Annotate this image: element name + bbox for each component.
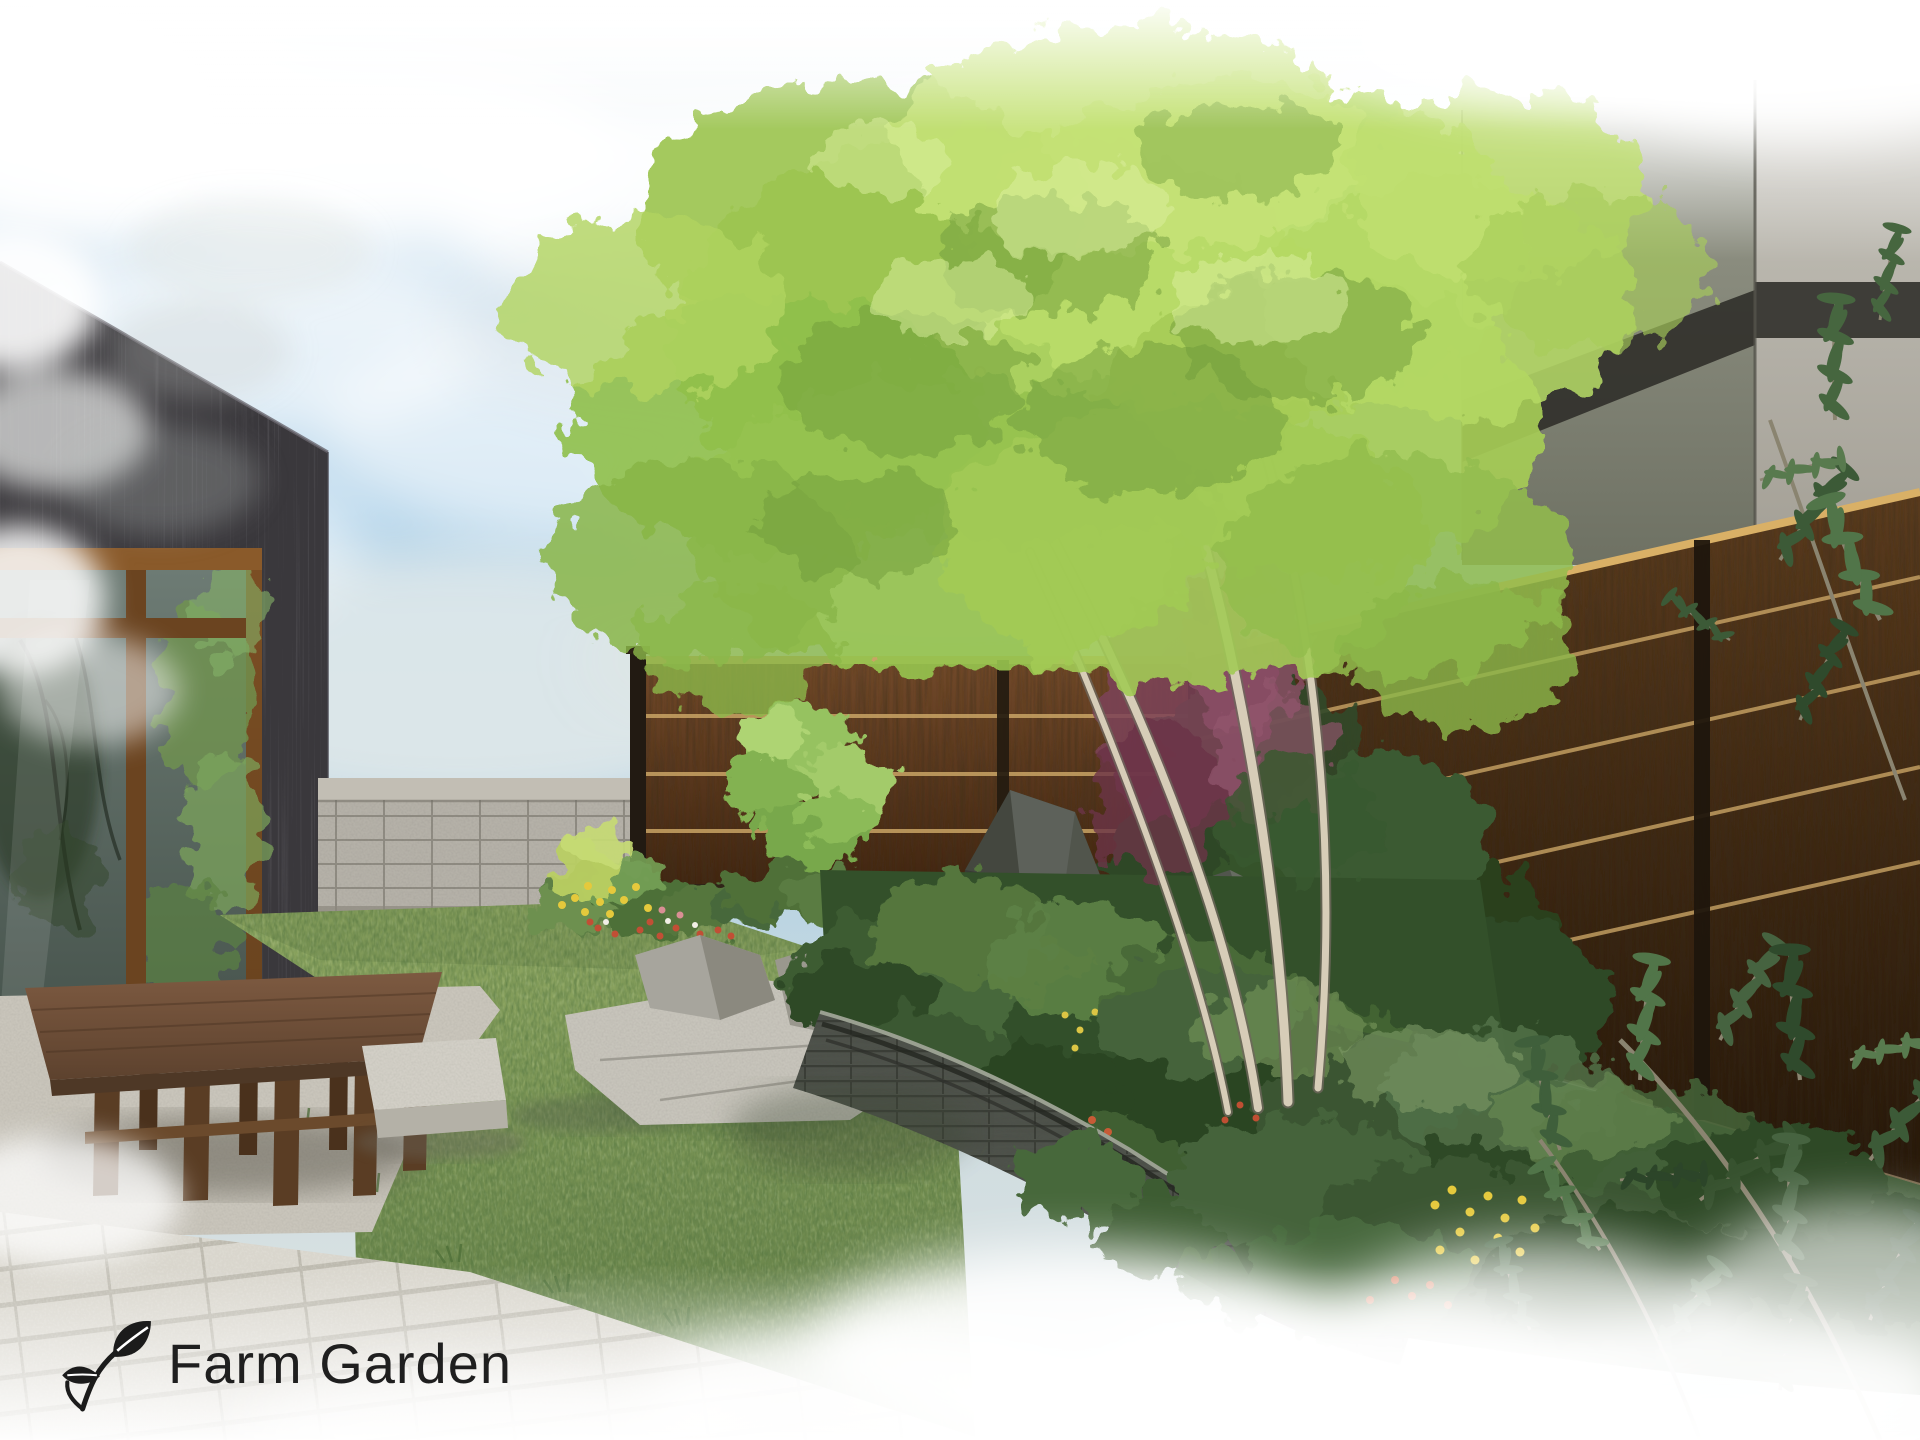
logo-text: Farm Garden bbox=[168, 1331, 512, 1396]
farm-garden-logo: Farm Garden bbox=[52, 1312, 512, 1414]
window-mullion-vertical bbox=[126, 570, 146, 1030]
block-wall-cap bbox=[318, 778, 648, 800]
sprout-leaf-icon bbox=[52, 1312, 154, 1414]
garden-scene bbox=[0, 0, 1920, 1440]
garden-rendering: Farm Garden bbox=[0, 0, 1920, 1440]
